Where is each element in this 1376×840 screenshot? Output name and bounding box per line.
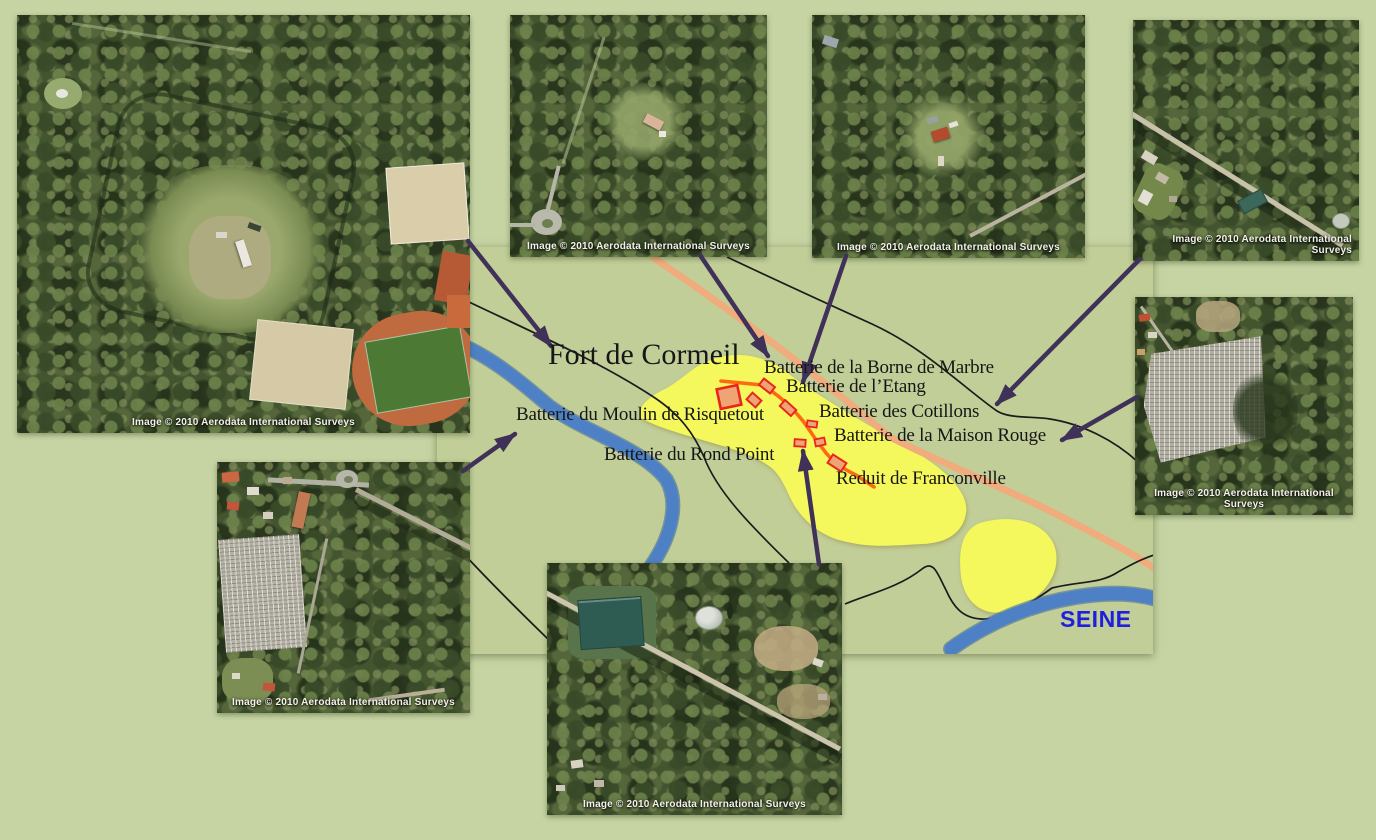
house xyxy=(247,487,259,495)
roundabout-center xyxy=(344,476,353,483)
house xyxy=(1148,332,1157,338)
cemetery xyxy=(218,535,307,653)
image-credit: Image © 2010 Aerodata International Surv… xyxy=(510,241,767,252)
label-rond-point: Batterie du Rond Point xyxy=(604,444,774,466)
house xyxy=(263,512,273,519)
water-tank xyxy=(1332,213,1350,229)
house xyxy=(556,785,565,791)
image-credit: Image © 2010 Aerodata International Surv… xyxy=(547,799,842,810)
image-credit: Image © 2010 Aerodata International Surv… xyxy=(1133,234,1359,256)
image-credit: Image © 2010 Aerodata International Surv… xyxy=(812,242,1085,253)
house xyxy=(570,759,583,769)
label-reduit-de-franconville: Reduit de Franconville xyxy=(836,468,1006,490)
label-cotillons: Batterie des Cotillons xyxy=(819,401,979,423)
figure-fort-de-cormeil: Image © 2010 Aerodata International Surv… xyxy=(0,0,1376,840)
tree-clump xyxy=(1233,367,1298,454)
sandy-area xyxy=(777,684,830,719)
sandy-area xyxy=(754,626,819,671)
house xyxy=(594,780,604,787)
label-maison-rouge: Batterie de la Maison Rouge xyxy=(834,425,1046,447)
building xyxy=(659,131,666,137)
satellite-image-borne-de-marbre: Image © 2010 Aerodata International Surv… xyxy=(510,15,767,257)
sandy-area xyxy=(1196,301,1240,332)
satellite-image-maison-rouge: Image © 2010 Aerodata International Surv… xyxy=(1135,297,1353,515)
satellite-image-fort-de-cormeil: Image © 2010 Aerodata International Surv… xyxy=(17,15,470,433)
orange-roof-building xyxy=(447,295,470,328)
green-roof-building xyxy=(578,596,645,650)
image-credit: Image © 2010 Aerodata International Surv… xyxy=(217,697,470,708)
sports-field-sand xyxy=(386,163,470,246)
house xyxy=(1137,349,1145,355)
orange-roof-house xyxy=(222,471,240,482)
red-roof-house xyxy=(227,501,240,511)
satellite-image-cotillons: Image © 2010 Aerodata International Surv… xyxy=(1133,20,1359,261)
label-fort-de-cormeil: Fort de Cormeil xyxy=(548,338,740,372)
house xyxy=(1169,196,1177,202)
label-seine: SEINE xyxy=(1060,606,1132,633)
red-roof-house xyxy=(262,682,275,691)
satellite-image-moulin-de-risquetout: Image © 2010 Aerodata International Surv… xyxy=(217,462,470,713)
house xyxy=(818,694,827,700)
road xyxy=(510,223,536,227)
image-credit: Image © 2010 Aerodata International Surv… xyxy=(17,417,470,428)
satellite-image-rond-point: Image © 2010 Aerodata International Surv… xyxy=(547,563,842,815)
house xyxy=(232,673,240,679)
water-tower xyxy=(695,606,723,630)
vehicle xyxy=(938,156,944,166)
house xyxy=(283,477,292,484)
label-etang: Batterie de l’Etang xyxy=(786,376,926,398)
satellite-image-etang: Image © 2010 Aerodata International Surv… xyxy=(812,15,1085,258)
white-structure xyxy=(56,89,68,98)
sports-field-sand-2 xyxy=(249,319,354,410)
building xyxy=(216,232,227,238)
soccer-pitch xyxy=(365,325,470,414)
label-moulin-de-risquetout: Batterie du Moulin de Risquetout xyxy=(516,404,764,426)
image-credit: Image © 2010 Aerodata International Surv… xyxy=(1135,488,1353,510)
